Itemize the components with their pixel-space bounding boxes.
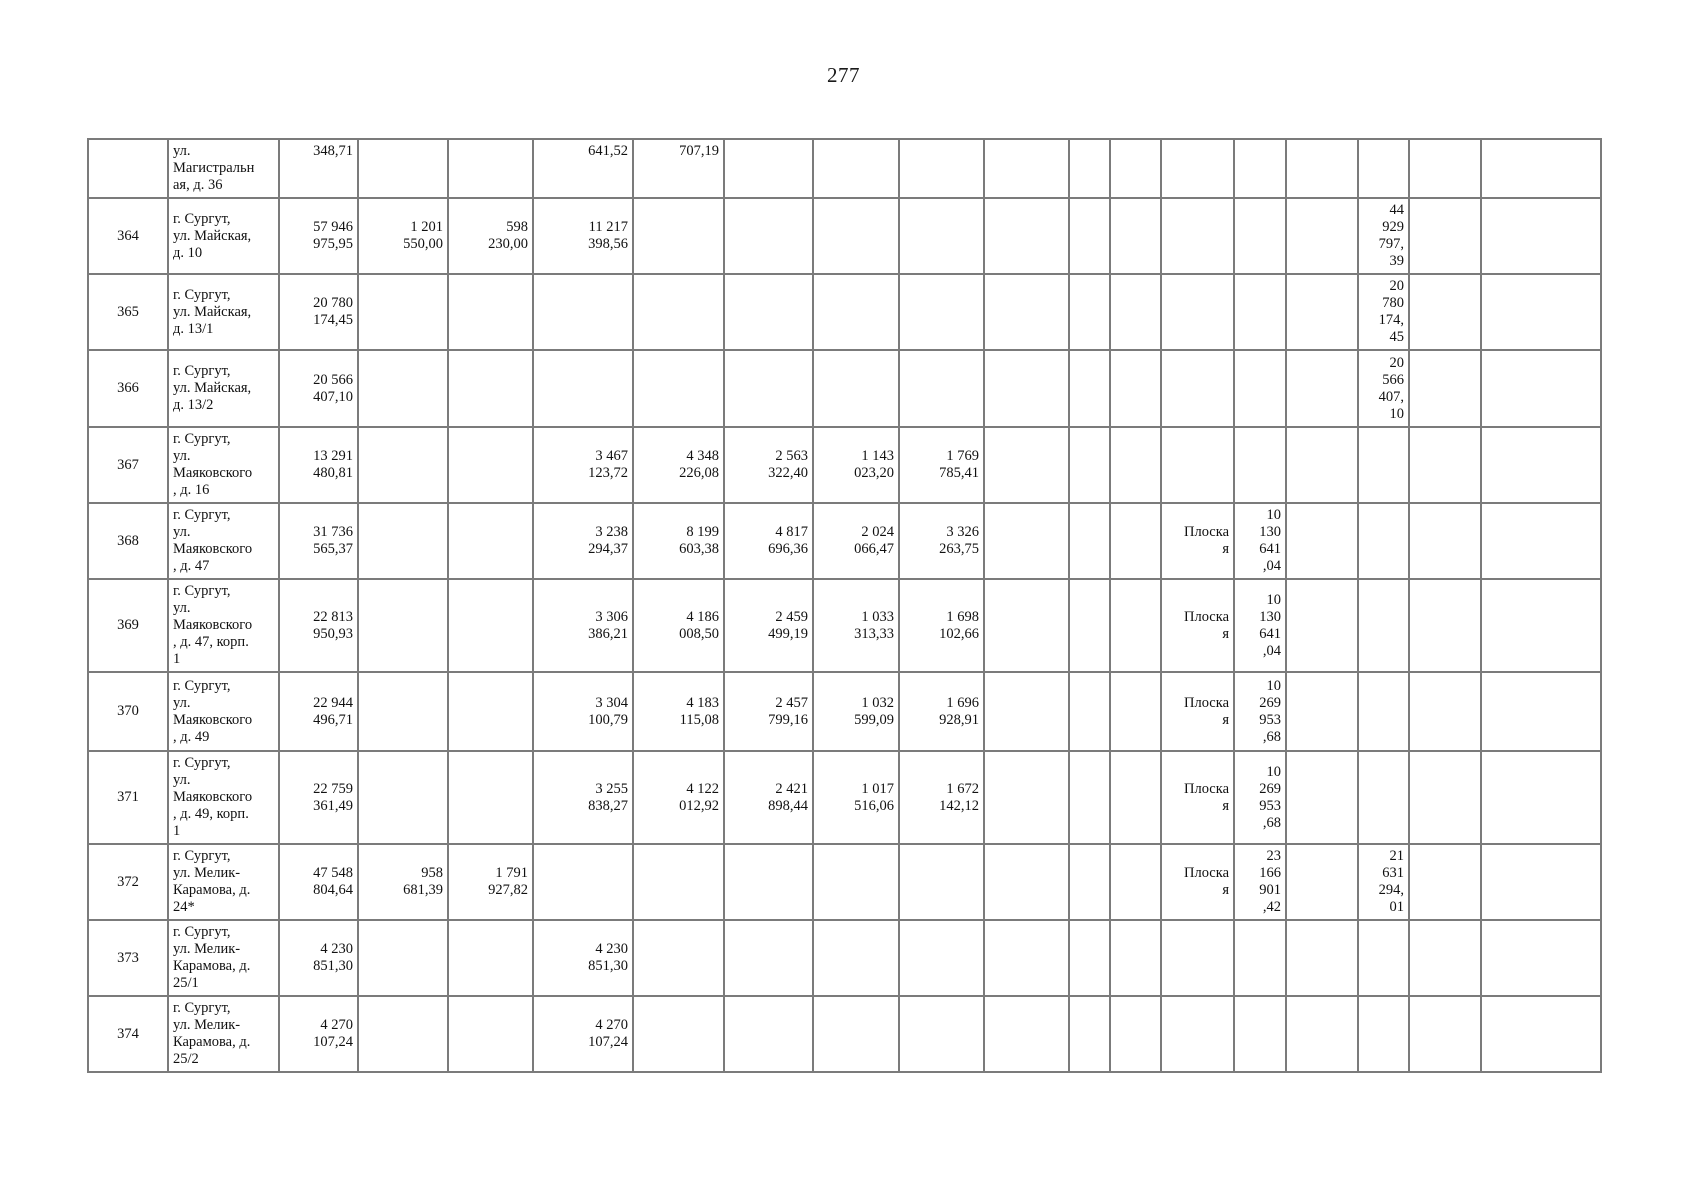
value-cell [1110,274,1161,350]
value-cell [724,920,813,996]
value-cell [899,996,984,1072]
value-cell: 4 817 696,36 [724,503,813,579]
value-cell [1110,198,1161,274]
value-cell [1481,751,1601,844]
value-cell [1234,996,1286,1072]
value-cell [1234,427,1286,503]
row-number-cell [88,139,168,198]
value-cell [1409,198,1481,274]
value-cell [533,274,633,350]
value-cell: 3 467 123,72 [533,427,633,503]
value-cell [1481,920,1601,996]
address-cell: г. Сургут, ул. Майская, д. 13/2 [168,350,279,427]
page-number: 277 [87,63,1600,88]
value-cell: 2 421 898,44 [724,751,813,844]
value-cell [1481,844,1601,920]
value-cell [984,996,1069,1072]
value-cell [1481,996,1601,1072]
value-cell [533,844,633,920]
value-cell [984,350,1069,427]
row-number-cell: 374 [88,996,168,1072]
value-cell [1161,198,1234,274]
address-cell: г. Сургут, ул. Маяковского , д. 47 [168,503,279,579]
value-cell [724,198,813,274]
value-cell [1069,427,1110,503]
value-cell: 1 032 599,09 [813,672,899,751]
value-cell [633,274,724,350]
value-cell: 4 183 115,08 [633,672,724,751]
value-cell [813,139,899,198]
value-cell: 20 780 174, 45 [1358,274,1409,350]
value-cell [1161,996,1234,1072]
value-cell [633,920,724,996]
value-cell [813,920,899,996]
value-cell [984,844,1069,920]
value-cell [1409,350,1481,427]
address-cell: г. Сургут, ул. Майская, д. 10 [168,198,279,274]
value-cell [724,274,813,350]
value-cell [358,996,448,1072]
value-cell [1286,274,1358,350]
value-cell [1234,139,1286,198]
value-cell: Плоска я [1161,503,1234,579]
value-cell [1161,427,1234,503]
value-cell [1409,751,1481,844]
value-cell: 1 769 785,41 [899,427,984,503]
value-cell: 10 269 953 ,68 [1234,672,1286,751]
value-cell [1161,920,1234,996]
value-cell [358,672,448,751]
value-cell [1110,844,1161,920]
value-cell: 8 199 603,38 [633,503,724,579]
value-cell: 4 230 851,30 [533,920,633,996]
address-cell: г. Сургут, ул. Маяковского , д. 16 [168,427,279,503]
value-cell [358,920,448,996]
value-cell [1286,920,1358,996]
value-cell: 1 672 142,12 [899,751,984,844]
value-cell [724,350,813,427]
value-cell [984,427,1069,503]
value-cell [1069,672,1110,751]
value-cell [1110,350,1161,427]
value-cell [1481,427,1601,503]
value-cell [358,350,448,427]
value-cell [1069,350,1110,427]
value-cell [899,844,984,920]
value-cell: 3 255 838,27 [533,751,633,844]
value-cell [358,579,448,672]
value-cell [633,198,724,274]
value-cell: 2 024 066,47 [813,503,899,579]
value-cell: Плоска я [1161,751,1234,844]
value-cell [1481,672,1601,751]
value-cell: 4 230 851,30 [279,920,358,996]
value-cell: 1 696 928,91 [899,672,984,751]
value-cell [1286,844,1358,920]
value-cell [1110,920,1161,996]
value-cell [984,751,1069,844]
value-cell: 707,19 [633,139,724,198]
value-cell [1286,350,1358,427]
address-cell: г. Сургут, ул. Маяковского , д. 47, корп… [168,579,279,672]
value-cell [633,996,724,1072]
address-cell: г. Сургут, ул. Майская, д. 13/1 [168,274,279,350]
value-cell [1234,350,1286,427]
value-cell [1069,579,1110,672]
value-cell: 598 230,00 [448,198,533,274]
value-cell [448,996,533,1072]
address-cell: г. Сургут, ул. Мелик- Карамова, д. 24* [168,844,279,920]
value-cell [984,139,1069,198]
value-cell: 2 457 799,16 [724,672,813,751]
value-cell: 57 946 975,95 [279,198,358,274]
value-cell [1161,274,1234,350]
value-cell [813,996,899,1072]
value-cell: 1 033 313,33 [813,579,899,672]
value-cell [899,350,984,427]
value-cell [448,139,533,198]
value-cell [358,274,448,350]
value-cell [724,844,813,920]
value-cell [1069,274,1110,350]
value-cell [1161,139,1234,198]
address-cell: г. Сургут, ул. Маяковского , д. 49, корп… [168,751,279,844]
value-cell [1358,672,1409,751]
value-cell [1069,503,1110,579]
value-cell: 3 326 263,75 [899,503,984,579]
value-cell [358,139,448,198]
value-cell: 1 143 023,20 [813,427,899,503]
value-cell: Плоска я [1161,844,1234,920]
value-cell [1069,996,1110,1072]
value-cell [813,844,899,920]
value-cell [984,579,1069,672]
value-cell [1234,198,1286,274]
value-cell: 22 813 950,93 [279,579,358,672]
value-cell [448,503,533,579]
value-cell [1234,920,1286,996]
value-cell [984,920,1069,996]
value-cell [1286,503,1358,579]
value-cell [448,579,533,672]
value-cell: 10 130 641 ,04 [1234,503,1286,579]
value-cell [448,751,533,844]
value-cell [813,198,899,274]
value-cell [448,350,533,427]
value-cell [1409,920,1481,996]
value-cell: 3 304 100,79 [533,672,633,751]
value-cell [1069,198,1110,274]
value-cell: 4 270 107,24 [279,996,358,1072]
value-cell: 13 291 480,81 [279,427,358,503]
address-cell: г. Сургут, ул. Мелик- Карамова, д. 25/2 [168,996,279,1072]
table-row: 372г. Сургут, ул. Мелик- Карамова, д. 24… [88,844,1601,920]
table-body: ул. Магистральн ая, д. 36348,71641,52707… [88,139,1601,1072]
value-cell [1409,996,1481,1072]
value-cell [1409,503,1481,579]
value-cell [1409,139,1481,198]
value-cell [1358,427,1409,503]
value-cell [1286,427,1358,503]
value-cell [1481,503,1601,579]
value-cell: 10 269 953 ,68 [1234,751,1286,844]
value-cell [1110,427,1161,503]
value-cell [358,751,448,844]
value-cell [1481,139,1601,198]
table-row: 366г. Сургут, ул. Майская, д. 13/220 566… [88,350,1601,427]
table-row: 367г. Сургут, ул. Маяковского , д. 1613 … [88,427,1601,503]
row-number-cell: 366 [88,350,168,427]
value-cell [813,350,899,427]
value-cell [1358,579,1409,672]
value-cell [1286,751,1358,844]
value-cell [984,274,1069,350]
value-cell [1286,139,1358,198]
value-cell [533,350,633,427]
value-cell [1069,139,1110,198]
table-row: 364г. Сургут, ул. Майская, д. 1057 946 9… [88,198,1601,274]
value-cell [1358,139,1409,198]
value-cell [1110,672,1161,751]
value-cell [1409,672,1481,751]
value-cell: 1 698 102,66 [899,579,984,672]
value-cell [1234,274,1286,350]
value-cell [1110,139,1161,198]
value-cell [1481,274,1601,350]
value-cell [984,672,1069,751]
value-cell [1286,579,1358,672]
value-cell: 22 944 496,71 [279,672,358,751]
value-cell: 10 130 641 ,04 [1234,579,1286,672]
value-cell: 958 681,39 [358,844,448,920]
value-cell [1286,198,1358,274]
row-number-cell: 365 [88,274,168,350]
value-cell [724,139,813,198]
table-row: ул. Магистральн ая, д. 36348,71641,52707… [88,139,1601,198]
table-row: 365г. Сургут, ул. Майская, д. 13/120 780… [88,274,1601,350]
value-cell [1358,503,1409,579]
value-cell [448,427,533,503]
address-cell: ул. Магистральн ая, д. 36 [168,139,279,198]
value-cell: 23 166 901 ,42 [1234,844,1286,920]
value-cell: Плоска я [1161,579,1234,672]
value-cell [448,274,533,350]
value-cell [813,274,899,350]
value-cell [358,427,448,503]
value-cell [633,350,724,427]
value-cell: 21 631 294, 01 [1358,844,1409,920]
table-row: 368г. Сургут, ул. Маяковского , д. 4731 … [88,503,1601,579]
value-cell: 22 759 361,49 [279,751,358,844]
value-cell [1069,844,1110,920]
row-number-cell: 364 [88,198,168,274]
value-cell [1409,427,1481,503]
value-cell [899,198,984,274]
value-cell [1069,920,1110,996]
row-number-cell: 371 [88,751,168,844]
address-cell: г. Сургут, ул. Маяковского , д. 49 [168,672,279,751]
value-cell: 44 929 797, 39 [1358,198,1409,274]
table-row: 373г. Сургут, ул. Мелик- Карамова, д. 25… [88,920,1601,996]
row-number-cell: 367 [88,427,168,503]
value-cell [1286,996,1358,1072]
value-cell: 31 736 565,37 [279,503,358,579]
value-cell: 11 217 398,56 [533,198,633,274]
value-cell [899,920,984,996]
table-row: 369г. Сургут, ул. Маяковского , д. 47, к… [88,579,1601,672]
value-cell: 4 122 012,92 [633,751,724,844]
value-cell: 1 017 516,06 [813,751,899,844]
value-cell [1481,579,1601,672]
value-cell [448,672,533,751]
value-cell [984,198,1069,274]
value-cell: 4 186 008,50 [633,579,724,672]
table-row: 370г. Сургут, ул. Маяковского , д. 4922 … [88,672,1601,751]
value-cell: 641,52 [533,139,633,198]
value-cell [724,996,813,1072]
value-cell: 47 548 804,64 [279,844,358,920]
value-cell [1409,579,1481,672]
value-cell: 20 566 407,10 [279,350,358,427]
value-cell [1481,350,1601,427]
value-cell [1069,751,1110,844]
value-cell [1409,274,1481,350]
value-cell: 2 563 322,40 [724,427,813,503]
row-number-cell: 370 [88,672,168,751]
value-cell [1110,751,1161,844]
value-cell [1481,198,1601,274]
row-number-cell: 372 [88,844,168,920]
row-number-cell: 368 [88,503,168,579]
value-cell [1358,920,1409,996]
value-cell [633,844,724,920]
value-cell [984,503,1069,579]
value-cell [1358,751,1409,844]
row-number-cell: 369 [88,579,168,672]
value-cell: 3 238 294,37 [533,503,633,579]
value-cell [448,920,533,996]
value-cell: 4 348 226,08 [633,427,724,503]
value-cell [1110,503,1161,579]
table-row: 374г. Сургут, ул. Мелик- Карамова, д. 25… [88,996,1601,1072]
value-cell: Плоска я [1161,672,1234,751]
value-cell: 348,71 [279,139,358,198]
value-cell [1110,579,1161,672]
value-cell: 3 306 386,21 [533,579,633,672]
value-cell: 20 780 174,45 [279,274,358,350]
value-cell [1286,672,1358,751]
value-cell: 20 566 407, 10 [1358,350,1409,427]
value-cell: 1 791 927,82 [448,844,533,920]
table-row: 371г. Сургут, ул. Маяковского , д. 49, к… [88,751,1601,844]
value-cell [1409,844,1481,920]
row-number-cell: 373 [88,920,168,996]
value-cell: 2 459 499,19 [724,579,813,672]
address-cell: г. Сургут, ул. Мелик- Карамова, д. 25/1 [168,920,279,996]
value-cell [1161,350,1234,427]
value-cell [358,503,448,579]
value-cell [1110,996,1161,1072]
value-cell: 4 270 107,24 [533,996,633,1072]
value-cell: 1 201 550,00 [358,198,448,274]
value-cell [899,139,984,198]
value-cell [1358,996,1409,1072]
value-cell [899,274,984,350]
document-page: 277 ул. Магистральн ая, д. 36348,71641,5… [0,0,1697,1200]
payments-table: ул. Магистральн ая, д. 36348,71641,52707… [87,138,1602,1073]
